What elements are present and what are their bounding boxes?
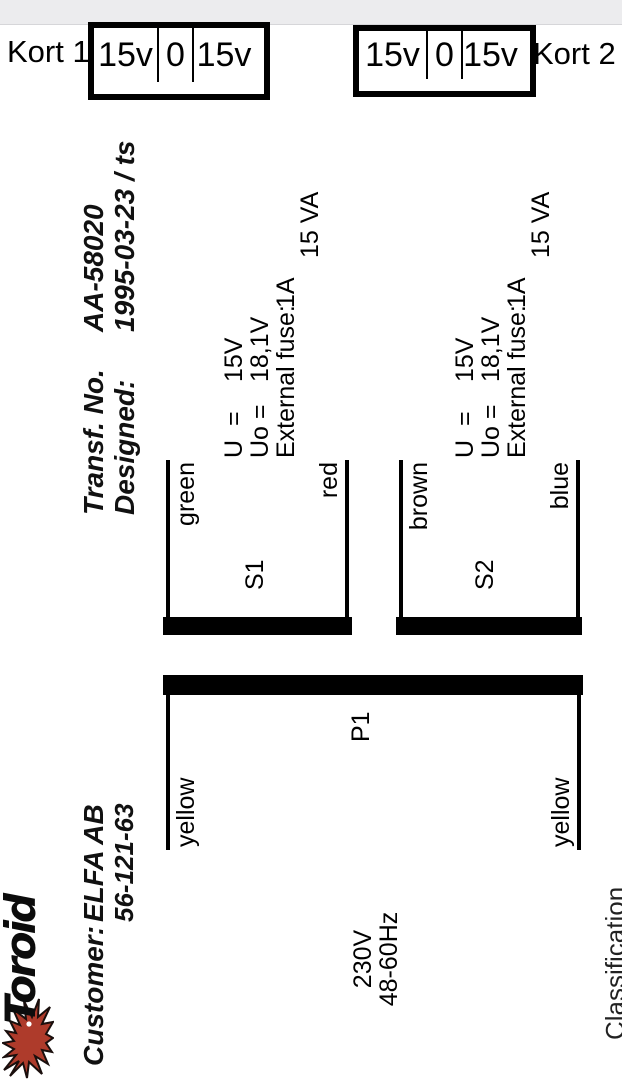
card1-cell-15v-left: 15v [94, 28, 159, 82]
customer-number: 56-121-63 [111, 803, 137, 922]
customer-value: ELFA AB [80, 804, 108, 922]
secondary2-winding-bar [396, 617, 582, 635]
s1-power-rating: 15 VA [298, 192, 323, 258]
secondary2-bottom-lead-color: blue [548, 462, 573, 509]
secondary1-top-lead-color: green [174, 462, 199, 526]
card2-terminal-box: 15v 0 15v [353, 25, 536, 97]
s1-u-label: U = [222, 411, 247, 458]
s1-fuse-label: External fuse: [274, 305, 299, 458]
primary-voltage: 230V [349, 930, 377, 988]
primary-rating: 230V 48-60Hz [350, 898, 402, 1020]
secondary1-name: S1 [243, 559, 268, 590]
s2-power-rating: 15 VA [529, 192, 554, 258]
s2-u-value: 15V [453, 338, 478, 382]
s2-fuse-label: External fuse: [505, 305, 530, 458]
card2-cell-15v-right: 15v [463, 31, 518, 79]
card1-cell-15v-right: 15v [194, 28, 254, 82]
secondary1-bottom-lead-color: red [317, 462, 342, 498]
s1-uo-label: Uo = [248, 404, 273, 458]
designed-label: Designed: [111, 380, 139, 515]
primary-bottom-lead-color: yellow [549, 778, 574, 847]
secondary2-specs: U = 15V Uo = 18,1V External fuse: 1A 15 … [453, 158, 563, 458]
transformer-spec-sheet: Toroid Customer: ELFA AB 56-121-63 Trans… [0, 0, 622, 1080]
brand-logo-text: Toroid [0, 896, 42, 1024]
secondary1-specs: U = 15V Uo = 18,1V External fuse: 1A 15 … [222, 158, 332, 458]
secondary2-bottom-lead [576, 460, 580, 617]
secondary2-top-lead [399, 460, 403, 617]
transf-no-label: Transf. No. [80, 369, 108, 515]
card2-cell-15v-left: 15v [359, 31, 428, 79]
secondary1-winding-bar [163, 617, 352, 635]
s1-fuse-value: 1A [274, 277, 299, 308]
secondary2-top-lead-color: brown [407, 462, 432, 530]
s2-u-label: U = [453, 411, 478, 458]
secondary2-name: S2 [473, 559, 498, 590]
customer-label: Customer: [80, 926, 108, 1066]
designed-value: 1995-03-23 / ts [111, 141, 139, 332]
kort1-label: Kort 1 [7, 36, 90, 68]
primary-frequency: 48-60Hz [375, 912, 403, 1007]
secondary1-bottom-lead [345, 460, 349, 617]
s1-u-value: 15V [222, 338, 247, 382]
page: Toroid Customer: ELFA AB 56-121-63 Trans… [0, 0, 622, 1080]
s2-fuse-value: 1A [505, 277, 530, 308]
primary-bottom-lead [577, 693, 581, 850]
transf-no-value: AA-58020 [80, 204, 108, 332]
kort2-label: Kort 2 [533, 38, 616, 70]
card1-cell-0: 0 [159, 28, 194, 82]
primary-winding-bar [163, 675, 583, 695]
s2-uo-value: 18,1V [479, 317, 504, 382]
s1-uo-value: 18,1V [248, 317, 273, 382]
card1-terminal-box: 15v 0 15v [88, 22, 270, 100]
card2-cell-0: 0 [428, 31, 463, 79]
primary-top-lead [166, 693, 170, 850]
primary-name: P1 [349, 711, 374, 742]
secondary1-top-lead [166, 460, 170, 617]
primary-top-lead-color: yellow [174, 778, 199, 847]
s2-uo-label: Uo = [479, 404, 504, 458]
classification-label: Classification [602, 887, 622, 1040]
